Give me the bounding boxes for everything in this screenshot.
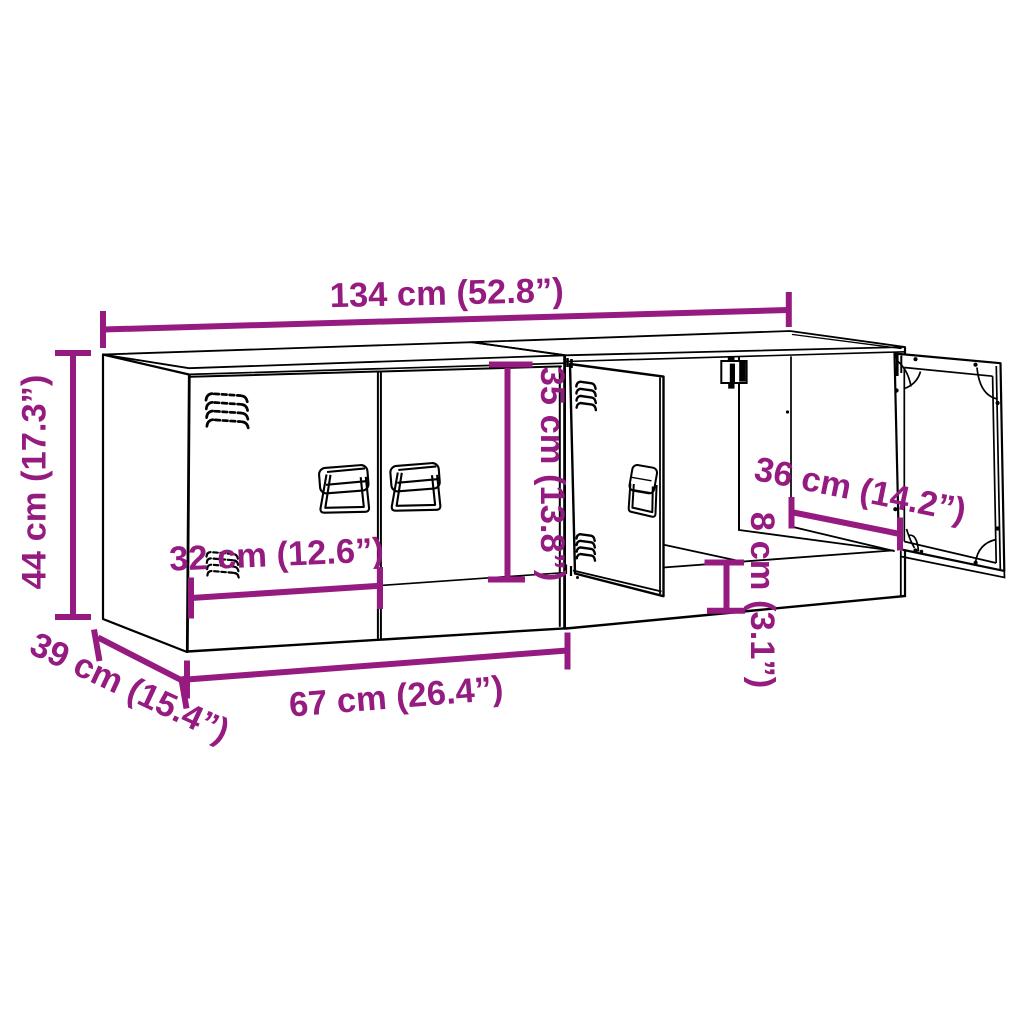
svg-text:44 cm (17.3”): 44 cm (17.3”)	[16, 375, 54, 590]
svg-text:134 cm (52.8”): 134 cm (52.8”)	[329, 272, 564, 315]
svg-text:35 cm (13.8”): 35 cm (13.8”)	[533, 367, 571, 582]
svg-text:8 cm (3.1”): 8 cm (3.1”)	[743, 512, 781, 688]
